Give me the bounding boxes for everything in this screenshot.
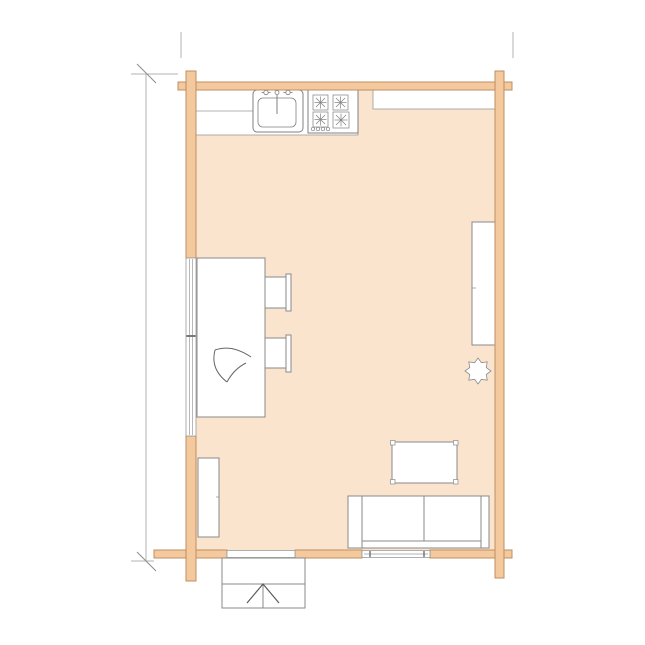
coffee-table-top — [392, 442, 457, 483]
chair-top-seat — [265, 277, 286, 308]
burner-bottom-left — [313, 112, 328, 127]
left-window — [186, 258, 196, 436]
chair-bottom-backrest — [286, 335, 291, 372]
floor-plan-canvas — [0, 0, 645, 645]
tap-right — [286, 90, 290, 94]
door-threshold — [227, 551, 295, 558]
burner-bottom-right — [333, 112, 349, 128]
left-wall-lower — [186, 436, 196, 581]
right-wall — [495, 71, 504, 578]
coffee-table-leg — [391, 480, 396, 485]
top-wall — [178, 82, 512, 90]
plant — [465, 358, 491, 384]
left-window-frame — [186, 258, 196, 436]
sofa-body — [348, 496, 489, 548]
wardrobe — [472, 222, 496, 345]
left-wall-upper — [186, 71, 196, 258]
coffee-table-leg — [454, 480, 459, 485]
chair-bottom — [265, 335, 291, 372]
coffee-table — [391, 441, 459, 485]
coffee-table-leg — [454, 441, 459, 446]
kitchen-shelf — [373, 90, 495, 109]
dining-table — [197, 258, 265, 417]
faucet-base — [275, 91, 279, 95]
cooktop — [308, 90, 358, 133]
burner-top-right — [333, 95, 348, 110]
chair-top-backrest — [286, 274, 291, 311]
bottom-window — [362, 551, 430, 558]
top-extension-lines — [181, 32, 513, 58]
burner-top-left — [313, 95, 328, 110]
kitchen-sink — [253, 90, 303, 132]
dimension-line-left — [131, 64, 178, 571]
bottom-wall-middle — [295, 550, 362, 558]
entry-steps — [222, 558, 305, 608]
sofa — [348, 496, 489, 548]
chair-bottom-seat — [265, 338, 286, 368]
tap-left — [264, 90, 268, 94]
low-cabinet — [198, 458, 219, 537]
chair-top — [265, 274, 291, 311]
coffee-table-leg — [391, 441, 396, 446]
